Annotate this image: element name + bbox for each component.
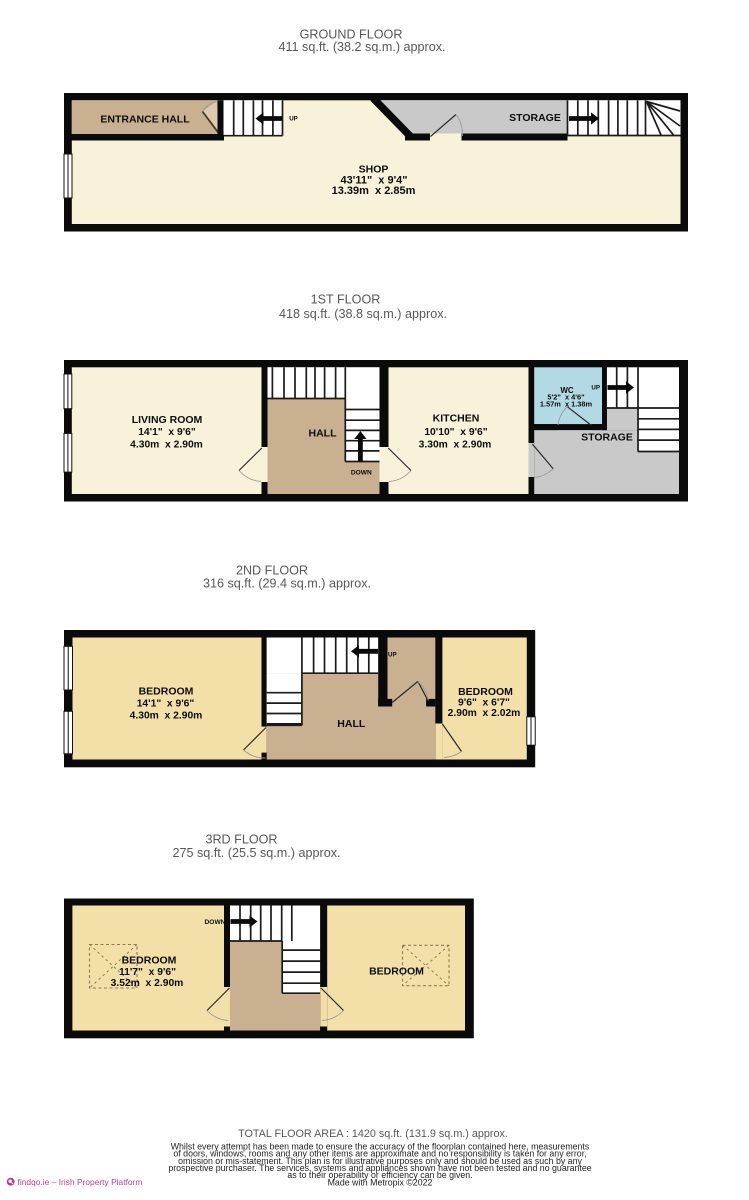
svg-text:411 sq.ft. (38.2 sq.m.) approx: 411 sq.ft. (38.2 sq.m.) approx. <box>278 40 445 54</box>
svg-text:14'1" x 9'6": 14'1" x 9'6" <box>138 427 196 438</box>
svg-text:DOWN: DOWN <box>351 470 372 477</box>
svg-text:418 sq.ft. (38.8 sq.m.) approx: 418 sq.ft. (38.8 sq.m.) approx. <box>279 307 447 321</box>
svg-text:9'6" x 6'7": 9'6" x 6'7" <box>458 698 510 709</box>
svg-text:13.39m x 2.85m: 13.39m x 2.85m <box>332 185 416 197</box>
svg-text:UP: UP <box>289 116 298 123</box>
svg-text:STORAGE: STORAGE <box>509 112 561 124</box>
svg-text:findqo.ie – Irish Property Pla: findqo.ie – Irish Property Platform <box>18 1177 143 1187</box>
svg-text:11'7" x 9'6": 11'7" x 9'6" <box>119 967 176 978</box>
svg-text:275 sq.ft. (25.5 sq.m.) approx: 275 sq.ft. (25.5 sq.m.) approx. <box>173 846 341 860</box>
svg-text:HALL: HALL <box>309 428 338 440</box>
svg-text:2ND FLOOR: 2ND FLOOR <box>236 564 308 578</box>
svg-text:DOWN: DOWN <box>205 919 226 926</box>
svg-text:LIVING ROOM: LIVING ROOM <box>132 414 203 426</box>
svg-text:3.30m x 2.90m: 3.30m x 2.90m <box>419 440 492 451</box>
svg-text:HALL: HALL <box>337 718 366 730</box>
svg-text:UP: UP <box>388 652 397 659</box>
svg-text:UP: UP <box>591 384 600 391</box>
svg-text:TOTAL FLOOR AREA : 1420 sq.ft.: TOTAL FLOOR AREA : 1420 sq.ft. (131.9 sq… <box>238 1128 508 1140</box>
svg-text:BEDROOM: BEDROOM <box>369 966 424 978</box>
svg-text:BEDROOM: BEDROOM <box>139 686 194 698</box>
svg-text:KITCHEN: KITCHEN <box>433 413 480 425</box>
svg-text:STORAGE: STORAGE <box>581 432 633 444</box>
svg-text:10'10" x 9'6": 10'10" x 9'6" <box>424 427 487 438</box>
svg-text:4.30m x 2.90m: 4.30m x 2.90m <box>130 711 203 722</box>
svg-text:2.90m x 2.02m: 2.90m x 2.02m <box>448 708 521 719</box>
svg-text:BEDROOM: BEDROOM <box>458 686 513 698</box>
svg-text:1ST FLOOR: 1ST FLOOR <box>311 293 381 307</box>
svg-text:Made with Metropix ©2022: Made with Metropix ©2022 <box>328 1177 433 1187</box>
svg-text:3.52m x 2.90m: 3.52m x 2.90m <box>111 978 184 989</box>
svg-text:3RD FLOOR: 3RD FLOOR <box>205 833 277 847</box>
svg-text:4.30m x 2.90m: 4.30m x 2.90m <box>130 439 203 450</box>
svg-text:BEDROOM: BEDROOM <box>122 955 177 967</box>
svg-text:316 sq.ft. (29.4 sq.m.) approx: 316 sq.ft. (29.4 sq.m.) approx. <box>203 577 371 591</box>
svg-text:14'1" x 9'6": 14'1" x 9'6" <box>137 699 195 710</box>
svg-text:ENTRANCE HALL: ENTRANCE HALL <box>100 114 190 126</box>
